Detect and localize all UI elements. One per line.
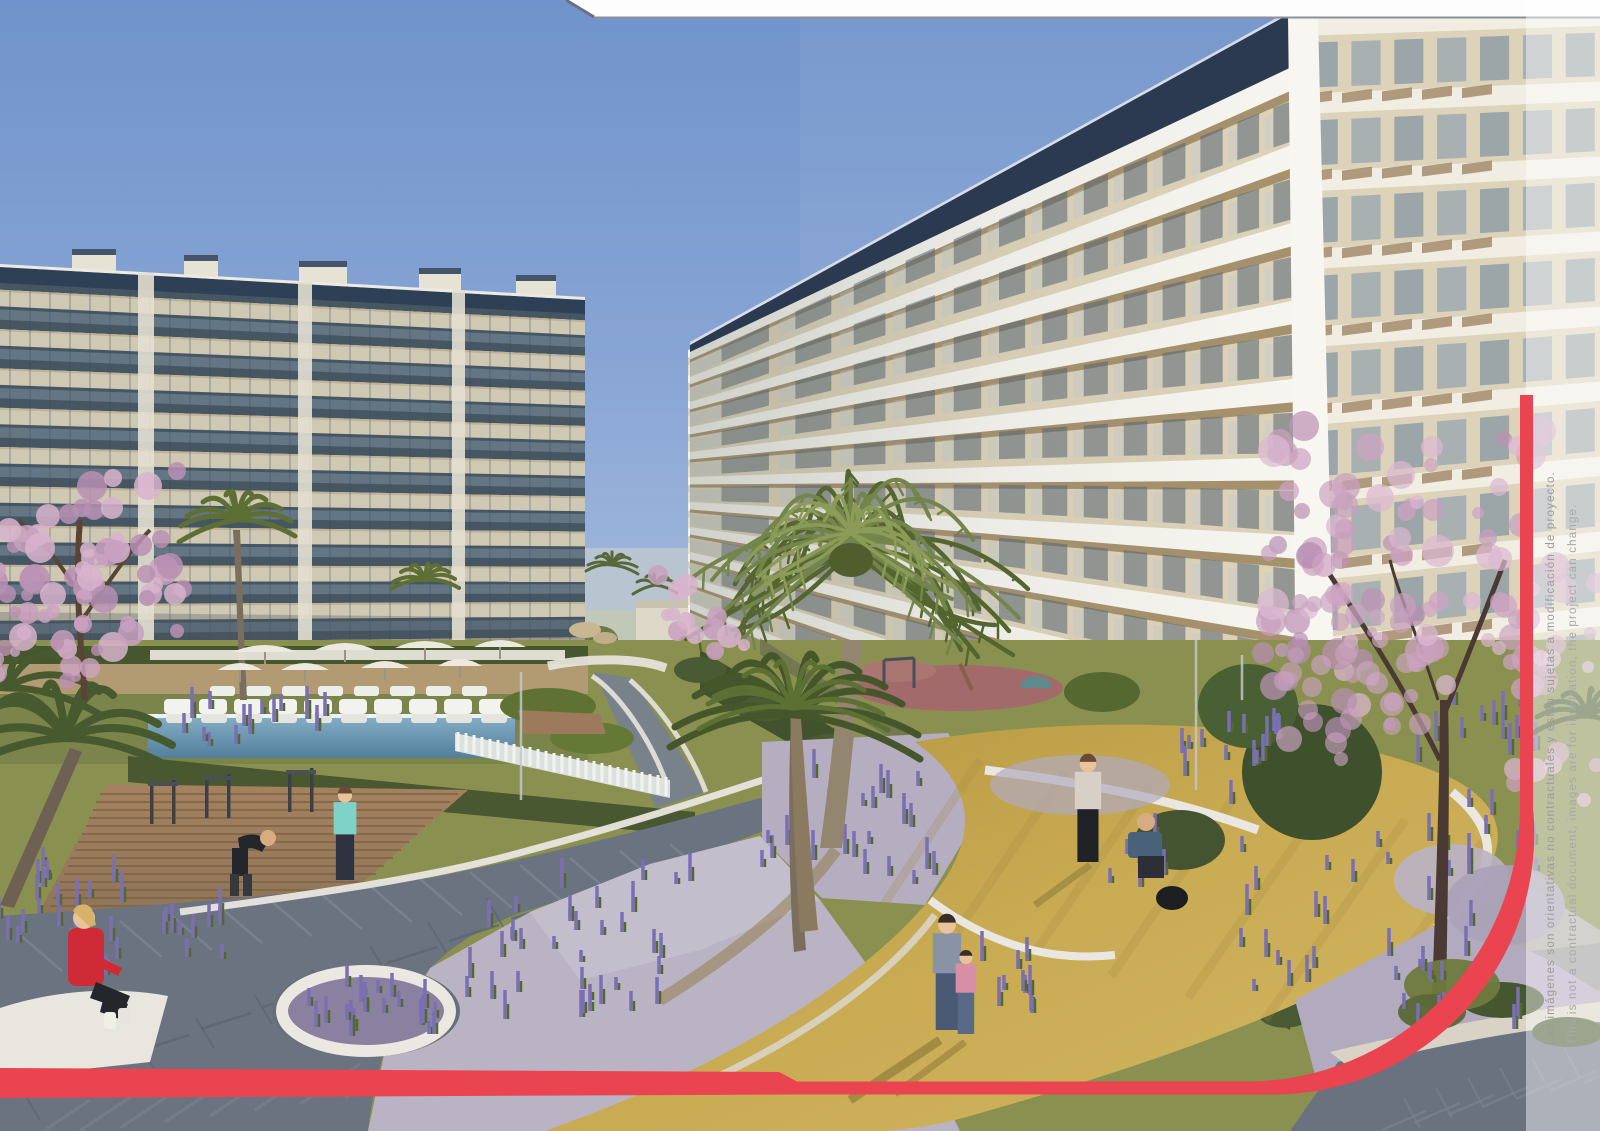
svg-text:Las imágenes son orientativas: Las imágenes son orientativas no contrac… [1545,471,1557,1045]
svg-text:This is not a contractual docu: This is not a contractual document, imag… [1567,503,1579,1045]
